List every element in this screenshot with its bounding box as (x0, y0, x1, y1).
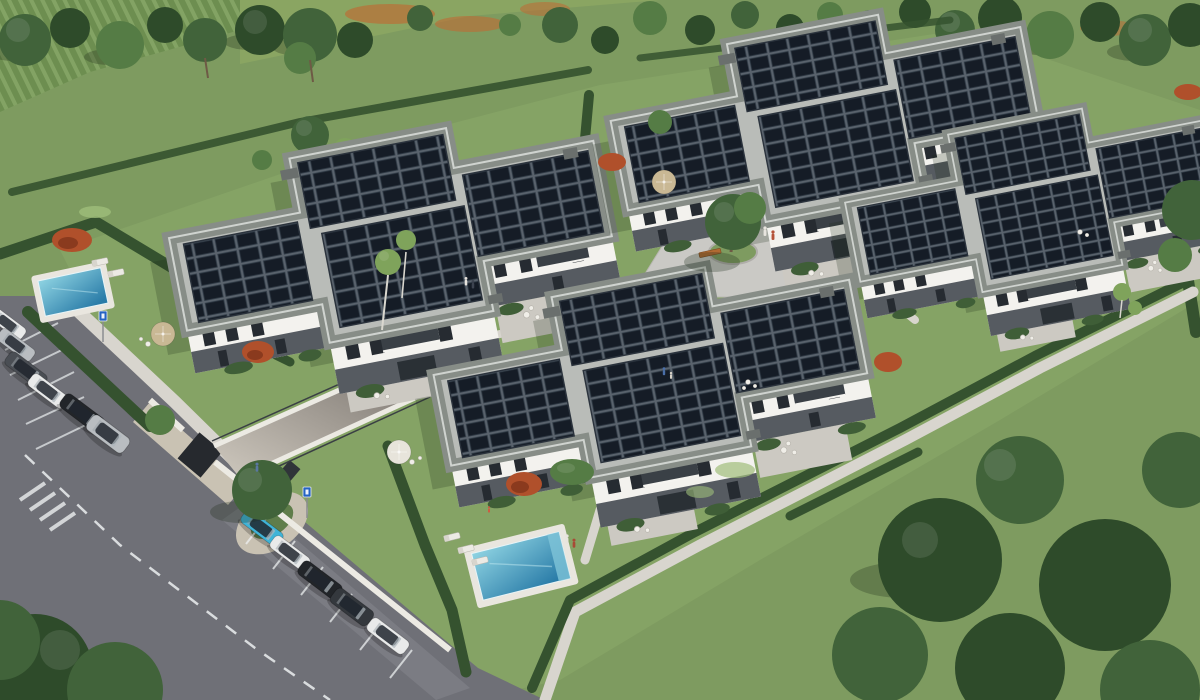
person (565, 534, 568, 544)
render-canvas (0, 0, 1200, 700)
person (472, 280, 475, 289)
person (255, 463, 258, 472)
person (771, 230, 774, 240)
person (670, 372, 672, 379)
aerial-render (0, 0, 1200, 700)
parasol-tan (151, 322, 175, 346)
parasol-white (387, 440, 411, 464)
person (465, 277, 468, 286)
person (663, 367, 666, 375)
person (572, 539, 575, 548)
person (488, 506, 490, 512)
person (763, 226, 766, 236)
parasol-tan (652, 170, 676, 194)
